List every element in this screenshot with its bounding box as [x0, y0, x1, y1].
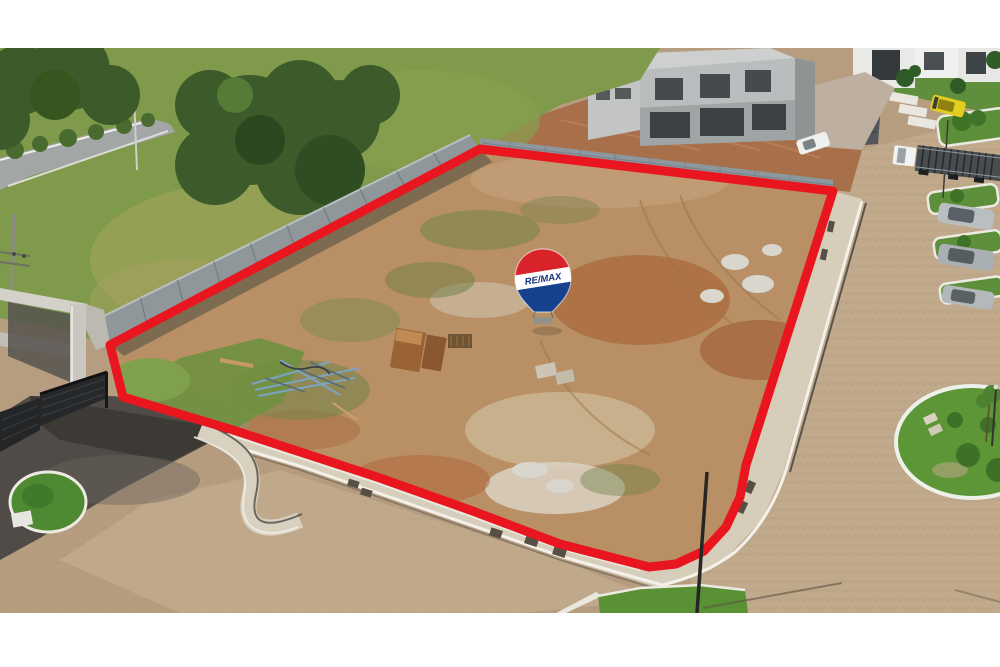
gate-post — [105, 372, 108, 408]
house-2-window — [924, 52, 944, 70]
letterbox-bottom — [0, 613, 1000, 667]
balloon-basket — [534, 317, 552, 324]
grass-island-bottom-left — [10, 472, 86, 532]
balloon-shadow — [532, 327, 562, 336]
photo-canvas: RE/MAX — [0, 0, 1000, 667]
house-1-entry — [872, 50, 900, 80]
tree-dark-spot-left — [30, 70, 80, 120]
letterbox-top — [0, 0, 1000, 48]
house-3-window — [966, 52, 986, 74]
house-right-wall — [795, 58, 815, 140]
